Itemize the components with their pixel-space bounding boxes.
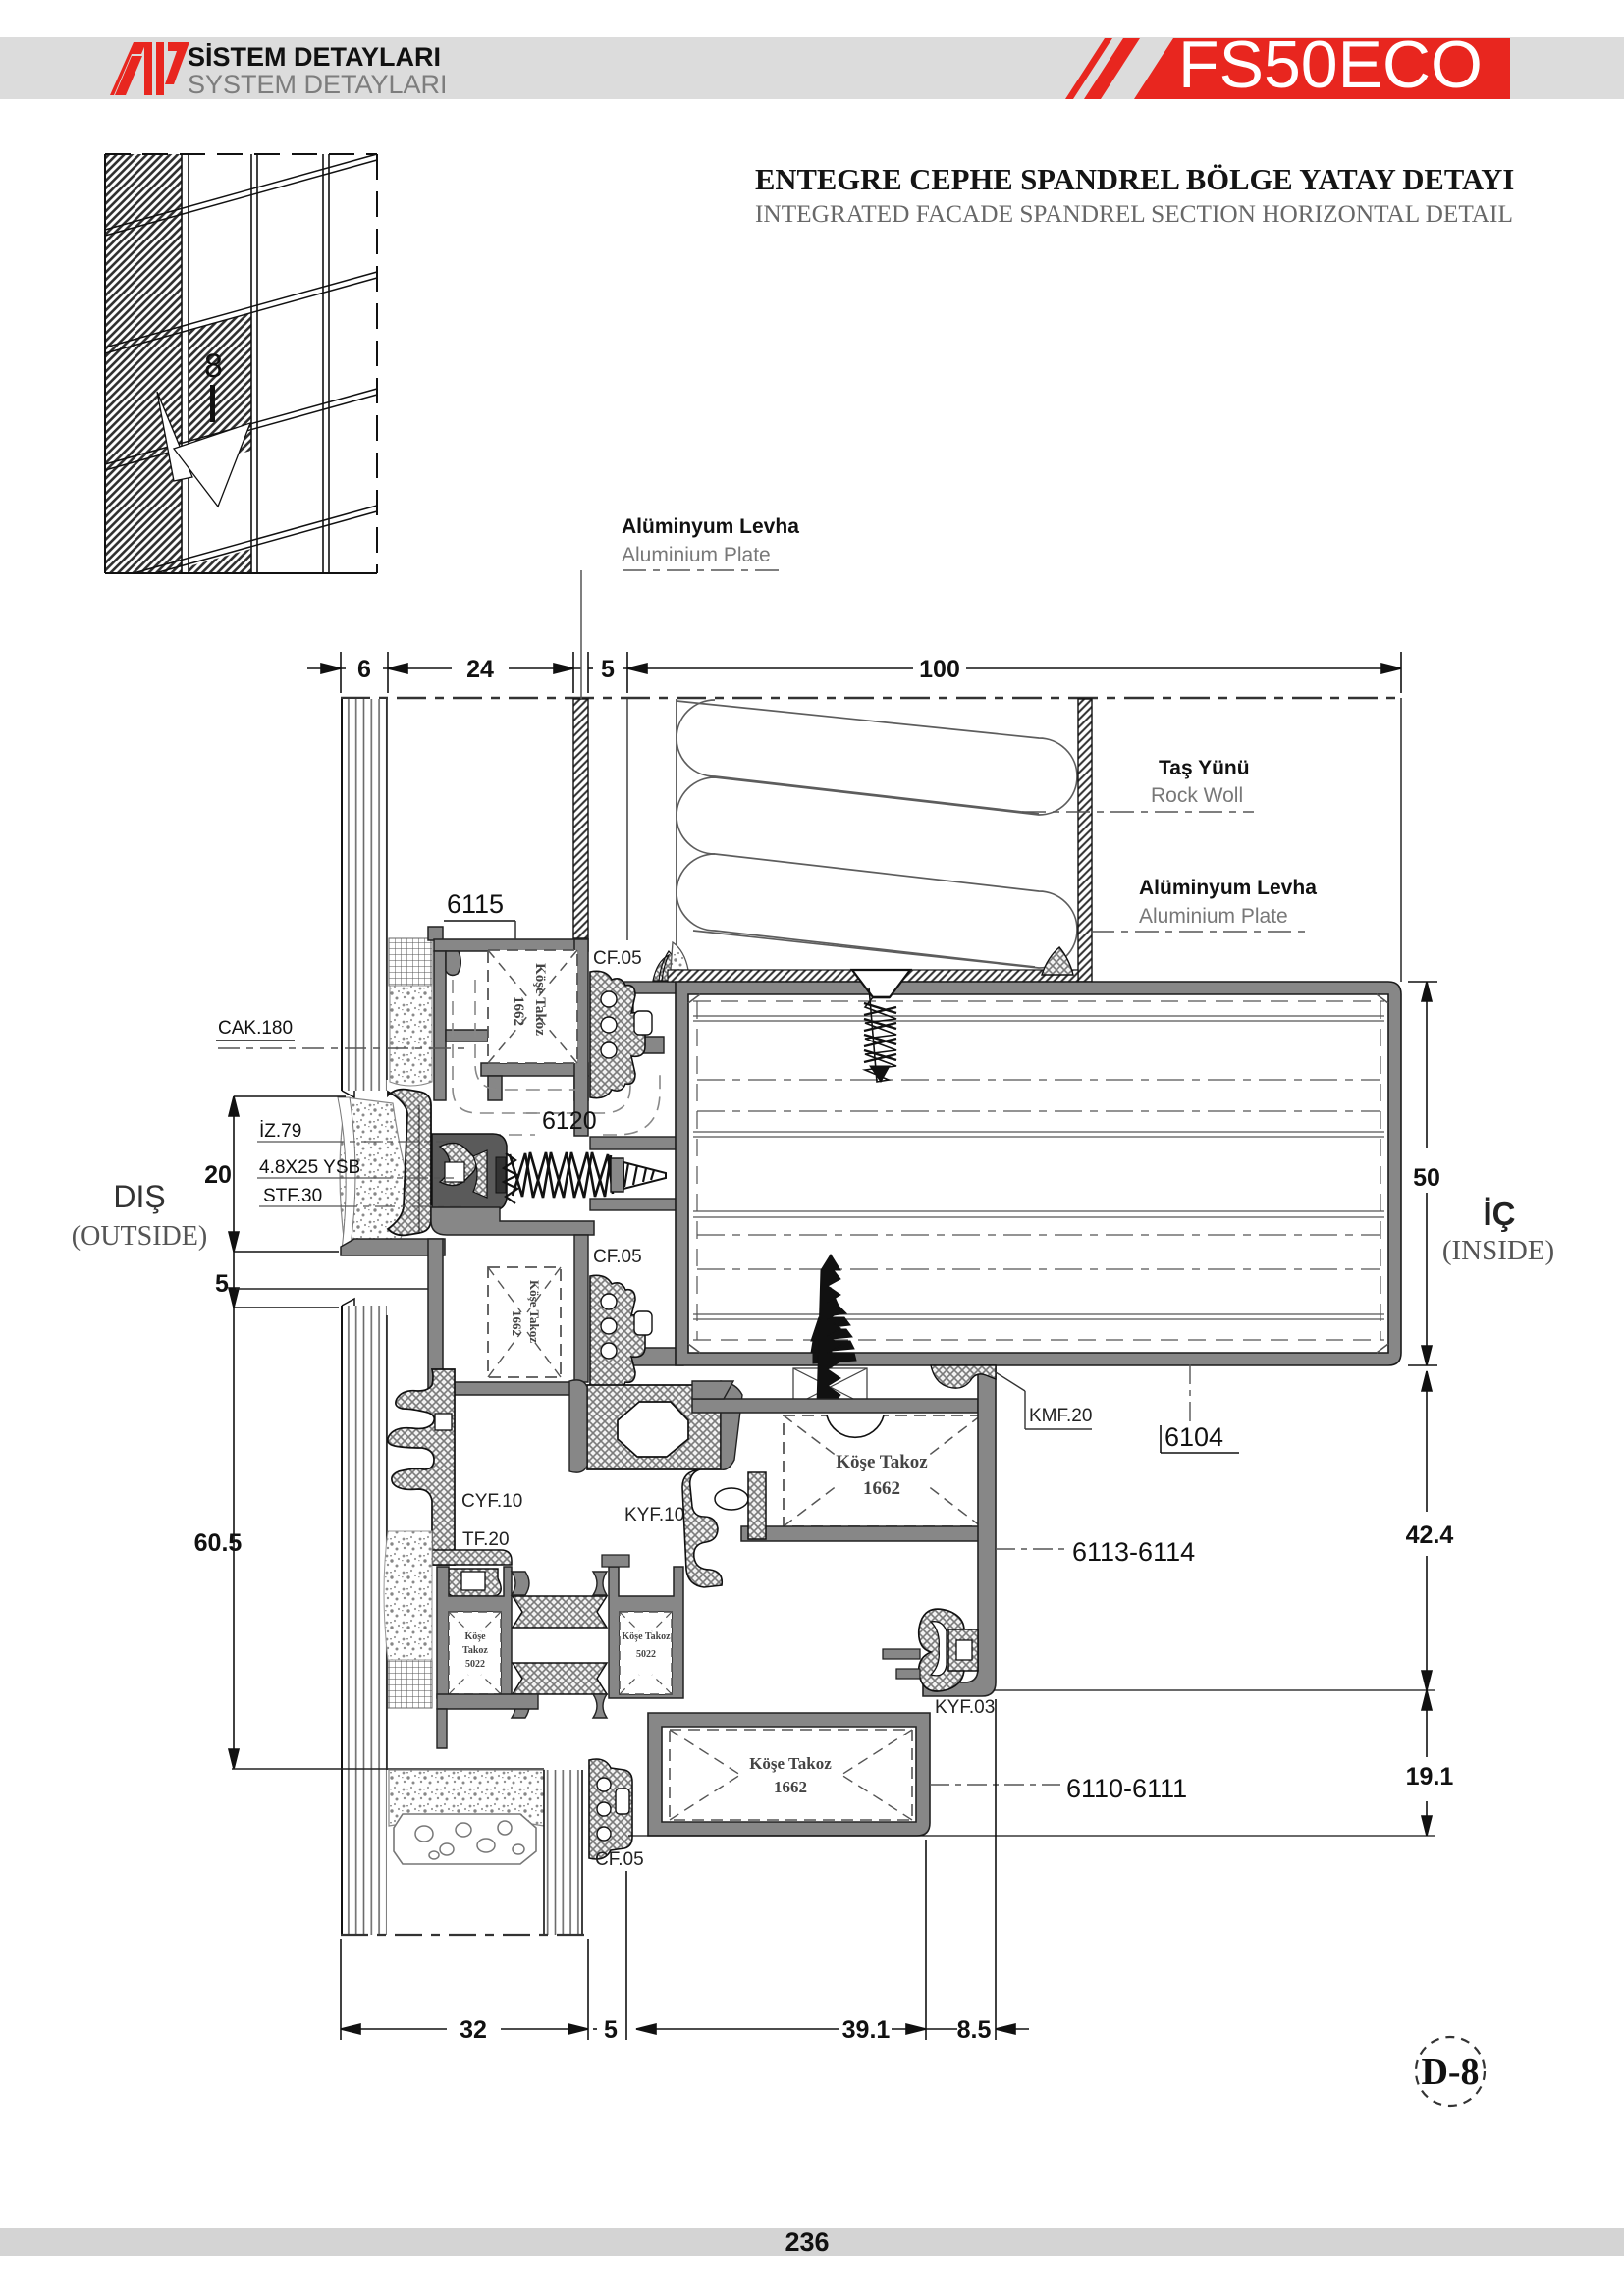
svg-text:50: 50 — [1413, 1164, 1440, 1192]
svg-text:Taş Yünü: Taş Yünü — [1159, 757, 1250, 779]
svg-text:5022: 5022 — [636, 1649, 656, 1660]
svg-text:DIŞ: DIŞ — [113, 1179, 165, 1214]
svg-text:8.5: 8.5 — [957, 2016, 992, 2044]
svg-text:5: 5 — [215, 1270, 229, 1298]
svg-text:Rock Woll: Rock Woll — [1151, 784, 1243, 807]
svg-text:42.4: 42.4 — [1406, 1522, 1454, 1549]
svg-text:Köşe Takoz: Köşe Takoz — [622, 1631, 671, 1642]
svg-text:39.1: 39.1 — [842, 2016, 891, 2044]
svg-text:236: 236 — [785, 2227, 829, 2257]
svg-text:Takoz: Takoz — [462, 1645, 488, 1656]
svg-text:24: 24 — [466, 656, 494, 683]
svg-text:4.8X25 YSB: 4.8X25 YSB — [259, 1157, 360, 1178]
svg-text:CF.05: CF.05 — [593, 1247, 642, 1267]
svg-text:6115: 6115 — [447, 889, 504, 919]
svg-text:Köşe: Köşe — [464, 1631, 486, 1642]
svg-text:SYSTEM DETAYLARI: SYSTEM DETAYLARI — [188, 70, 448, 99]
svg-text:Aluminium Plate: Aluminium Plate — [622, 544, 771, 566]
svg-text:1662: 1662 — [511, 996, 526, 1026]
svg-text:FS50ECO: FS50ECO — [1178, 27, 1483, 102]
svg-text:CAK.180: CAK.180 — [218, 1018, 293, 1039]
svg-text:TF.20: TF.20 — [462, 1529, 510, 1550]
svg-text:İZ.79: İZ.79 — [259, 1121, 301, 1142]
svg-text:SİSTEM DETAYLARI: SİSTEM DETAYLARI — [188, 42, 441, 72]
svg-text:Alüminyum Levha: Alüminyum Levha — [622, 515, 799, 538]
svg-text:KYF.03: KYF.03 — [935, 1697, 995, 1718]
svg-text:(INSIDE): (INSIDE) — [1442, 1235, 1554, 1266]
svg-text:CF.05: CF.05 — [595, 1849, 644, 1870]
svg-text:19.1: 19.1 — [1406, 1763, 1454, 1790]
svg-text:Köşe Takoz: Köşe Takoz — [749, 1754, 832, 1773]
svg-text:5022: 5022 — [465, 1659, 485, 1670]
svg-text:INTEGRATED FACADE SPANDREL SEC: INTEGRATED FACADE SPANDREL SECTION HORIZ… — [755, 200, 1513, 228]
svg-text:100: 100 — [919, 656, 960, 683]
svg-text:Köşe Takoz: Köşe Takoz — [527, 1280, 542, 1343]
svg-text:Köşe Takoz: Köşe Takoz — [836, 1452, 928, 1472]
svg-text:(OUTSIDE): (OUTSIDE) — [72, 1221, 207, 1252]
svg-text:1662: 1662 — [510, 1310, 524, 1336]
svg-text:CYF.10: CYF.10 — [461, 1491, 522, 1512]
svg-text:ENTEGRE CEPHE SPANDREL BÖLGE Y: ENTEGRE CEPHE SPANDREL BÖLGE YATAY DETAY… — [755, 163, 1514, 196]
svg-text:6110-6111: 6110-6111 — [1066, 1774, 1187, 1803]
svg-text:20: 20 — [204, 1161, 232, 1189]
svg-text:D-8: D-8 — [1421, 2052, 1479, 2093]
svg-text:İÇ: İÇ — [1484, 1196, 1516, 1232]
svg-text:Alüminyum Levha: Alüminyum Levha — [1139, 877, 1317, 899]
svg-text:KYF.10: KYF.10 — [624, 1505, 684, 1525]
svg-text:KMF.20: KMF.20 — [1029, 1406, 1092, 1426]
svg-text:32: 32 — [460, 2016, 487, 2044]
svg-text:1662: 1662 — [774, 1778, 807, 1796]
svg-text:Aluminium Plate: Aluminium Plate — [1139, 905, 1288, 928]
svg-text:1662: 1662 — [863, 1478, 900, 1499]
svg-text:CF.05: CF.05 — [593, 948, 642, 969]
svg-text:5: 5 — [601, 656, 615, 683]
svg-text:6: 6 — [357, 656, 371, 683]
svg-text:8: 8 — [204, 347, 223, 385]
svg-text:Köşe Takoz: Köşe Takoz — [532, 963, 548, 1036]
svg-text:5: 5 — [604, 2016, 618, 2044]
svg-text:6120: 6120 — [542, 1107, 597, 1135]
svg-text:6104: 6104 — [1164, 1422, 1223, 1452]
svg-text:60.5: 60.5 — [194, 1529, 243, 1557]
svg-text:STF.30: STF.30 — [263, 1186, 322, 1206]
svg-text:6113-6114: 6113-6114 — [1072, 1537, 1195, 1567]
